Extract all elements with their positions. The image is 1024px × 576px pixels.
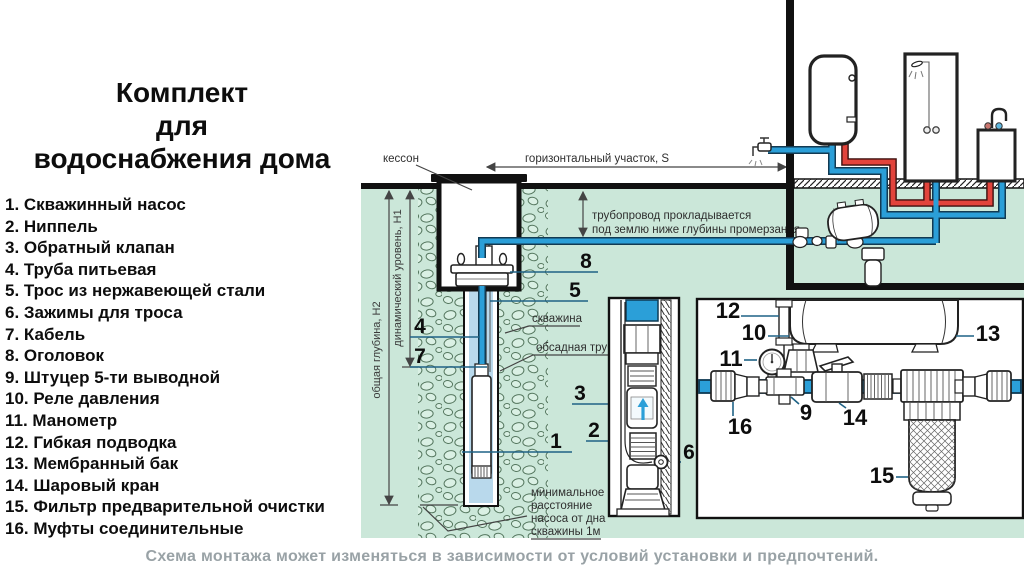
parts-list-item: 15. Фильтр предварительной очистки [5,496,377,518]
parts-list-item: 4. Труба питьевая [5,259,377,281]
callout-14: 14 [843,405,868,430]
infographic-page: { "title": { "lines": ["Комплект", "для"… [0,0,1024,576]
kesson-label: кессон [383,153,419,165]
installation-detail-panel: 12 10 11 13 16 9 14 15 [697,298,1023,518]
dynamic-level-label: динамический уровень, H1 [392,209,404,346]
parts-list: 1. Скважинный насос2. Ниппель3. Обратный… [5,194,377,540]
callout-12: 12 [716,298,740,323]
house-wall [786,0,794,290]
boiler [810,56,856,144]
callout-10: 10 [742,320,766,345]
parts-list-item: 1. Скважинный насос [5,194,377,216]
svg-text:скважины 1м: скважины 1м [531,526,600,538]
parts-list-item: 13. Мембранный бак [5,453,377,475]
casing-hatch [661,300,671,514]
ground-surface-line [361,183,790,189]
callout-2: 2 [588,419,600,442]
callout-7: 7 [414,345,426,368]
parts-list-item: 12. Гибкая подводка [5,432,377,454]
parts-list-item: 2. Ниппель [5,216,377,238]
parts-list-item: 10. Реле давления [5,388,377,410]
callout-13: 13 [976,321,1000,346]
basement-filter [862,248,884,286]
callout-4: 4 [414,315,426,338]
parts-list-item: 7. Кабель [5,324,377,346]
parts-list-item: 8. Оголовок [5,345,377,367]
sink [978,109,1015,181]
basement-floor [786,283,1024,290]
parts-list-item: 14. Шаровый кран [5,475,377,497]
horizontal-section-label: горизонтальный участок, S [525,153,669,165]
detail-pipe [626,300,658,321]
membrane-tank [790,300,958,352]
pipe-note-line2: под землю ниже глубины промерзания [592,224,800,236]
corrugated-coupling [864,374,892,399]
callout-11: 11 [719,346,742,371]
callout-3: 3 [574,382,586,405]
parts-list-item: 6. Зажимы для троса [5,302,377,324]
callout-8: 8 [580,250,592,273]
outdoor-faucet-icon [749,138,771,166]
callout-9: 9 [800,400,812,425]
svg-text:минимальное: минимальное [531,487,604,499]
pump-detail-panel [609,298,679,516]
parts-list-item: 11. Манометр [5,410,377,432]
parts-list-item: 16. Муфты соединительные [5,518,377,540]
svg-text:насоса от дна: насоса от дна [531,513,606,525]
check-valve [627,388,657,428]
page-title: Комплект для водоснабжения дома [0,76,364,175]
svg-text:расстояние: расстояние [531,500,592,512]
callout-1: 1 [550,430,562,453]
parts-list-item: 9. Штуцер 5-ти выводной [5,367,377,389]
footer-caption: Схема монтажа может изменяться в зависим… [0,548,1024,566]
callout-16: 16 [728,414,752,439]
pipe-note-line1: трубопровод прокладывается [592,210,751,222]
parts-list-item: 5. Трос из нержавеющей стали [5,280,377,302]
title-line: Комплект [0,76,364,109]
borehole-pump [472,364,491,478]
callout-5: 5 [569,279,581,302]
borehole-label: скважина [532,313,583,325]
title-line: для [0,109,364,142]
parts-list-item: 3. Обратный клапан [5,237,377,259]
shower-cabin [905,54,957,181]
title-line: водоснабжения дома [0,142,364,175]
callout-15: 15 [870,463,894,488]
callout-6: 6 [683,441,695,464]
nipple [630,433,656,459]
